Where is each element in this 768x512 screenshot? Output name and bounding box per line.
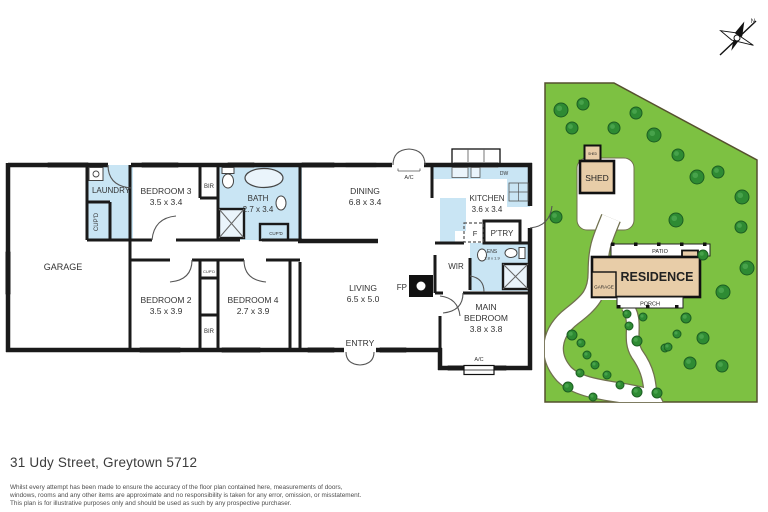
label-cupd-hall: CUP'D — [203, 269, 215, 274]
tree-highlight — [626, 323, 629, 326]
room-label-kitchen: 3.6 x 3.4 — [472, 205, 503, 214]
tree-highlight — [692, 172, 698, 178]
room-label-bedroom-3: 3.5 x 3.4 — [150, 197, 183, 207]
label-cupd-bath: CUP'D — [269, 231, 283, 236]
label-ens: ENS — [487, 249, 498, 255]
room-label-dining: DINING — [350, 186, 380, 196]
room-label-bedroom-2: 3.5 x 3.9 — [150, 306, 183, 316]
tree-highlight — [654, 390, 658, 394]
label-pantry: P'TRY — [491, 229, 514, 238]
tree-highlight — [579, 100, 584, 105]
tree-highlight — [699, 334, 704, 339]
tree-highlight — [671, 215, 677, 221]
tree-highlight — [568, 124, 573, 129]
label-dw: DW — [500, 171, 509, 177]
label-porch: PORCH — [640, 302, 660, 308]
tree-highlight — [578, 340, 581, 343]
room-label-main-bedroom: 3.8 x 3.8 — [470, 324, 503, 334]
tree-highlight — [742, 263, 748, 269]
tree-highlight — [718, 287, 724, 293]
room-label-bath: 2.7 x 3.4 — [243, 205, 274, 214]
room-label-bedroom-3: BEDROOM 3 — [140, 186, 191, 196]
tree-highlight — [577, 370, 580, 373]
tree-highlight — [686, 359, 691, 364]
disclaimer-line: This plan is for illustrative purposes o… — [10, 500, 361, 508]
label-ens-dims: 1.8 x 1.9 — [484, 256, 500, 261]
tree-highlight — [634, 338, 638, 342]
room-label-dining: 6.8 x 3.4 — [349, 197, 382, 207]
label-residence: RESIDENCE — [621, 270, 694, 284]
tree-highlight — [569, 332, 573, 336]
tree-highlight — [565, 384, 569, 388]
tree-highlight — [592, 362, 595, 365]
label-fp: FP — [397, 283, 407, 292]
room-label-kitchen: KITCHEN — [469, 194, 504, 203]
label-patio: PATIO — [652, 249, 668, 255]
label-cupd-laundry: CUP'D — [94, 212, 100, 231]
room-label-bedroom-2: BEDROOM 2 — [140, 295, 191, 305]
label-site-garage: GARAGE — [594, 285, 614, 290]
disclaimer-line: Whilst every attempt has been made to en… — [10, 484, 361, 492]
tree-highlight — [590, 394, 593, 397]
disclaimer-text: Whilst every attempt has been made to en… — [10, 484, 361, 509]
label-ac-dining: A/C — [404, 175, 413, 181]
room-label-bedroom-4: 2.7 x 3.9 — [237, 306, 270, 316]
room-label-bath: BATH — [248, 194, 269, 203]
tree-highlight — [700, 252, 704, 256]
tree-highlight — [737, 223, 742, 228]
disclaimer-line: windows, rooms and any other items are a… — [10, 492, 361, 500]
tree-highlight — [718, 362, 723, 367]
compass-north-label: N — [751, 18, 756, 25]
tree-highlight — [649, 130, 655, 136]
label-bir-hall: BIR — [204, 329, 215, 335]
label-fridge: F — [473, 229, 478, 238]
tree-highlight — [556, 105, 562, 111]
fireplace — [409, 275, 433, 297]
tree-highlight — [683, 315, 687, 319]
floorplan-drawing: SHEDSHEDRESIDENCEGARAGEPATIOPORCH N — [0, 0, 768, 512]
site-plan: SHEDSHEDRESIDENCEGARAGEPATIOPORCH — [545, 83, 757, 410]
tree-highlight — [584, 352, 587, 355]
room-label-laundry: LAUNDRY — [92, 186, 131, 195]
tree-highlight — [610, 124, 615, 129]
tree-highlight — [634, 389, 638, 393]
tree-highlight — [552, 213, 557, 218]
room-label-garage: GARAGE — [44, 262, 83, 272]
address-text: 31 Udy Street, Greytown 5712 — [10, 455, 197, 470]
label-ac-mainbed: A/C — [474, 357, 483, 363]
tree-highlight — [674, 151, 679, 156]
tree-highlight — [737, 192, 743, 198]
room-label-bedroom-4: BEDROOM 4 — [227, 295, 278, 305]
tree-highlight — [674, 331, 677, 334]
tree-highlight — [617, 382, 620, 385]
label-bir-bed3: BIR — [204, 184, 215, 190]
tree-highlight — [714, 168, 719, 173]
room-label-wir: WIR — [448, 262, 464, 271]
tree-highlight — [665, 344, 668, 347]
tree-highlight — [604, 372, 607, 375]
room-label-living: LIVING — [349, 283, 377, 293]
tree-highlight — [624, 311, 627, 314]
tree-highlight — [640, 314, 643, 317]
room-label-living: 6.5 x 5.0 — [347, 294, 380, 304]
floor-plan: GARAGELAUNDRYBEDROOM 33.5 x 3.4BATH2.7 x… — [6, 149, 553, 375]
tree-highlight — [632, 109, 637, 114]
compass-rose: N — [715, 14, 761, 58]
room-label-main-bedroom: BEDROOM — [464, 313, 508, 323]
label-shed: SHED — [585, 173, 609, 183]
room-label-main-bedroom: MAIN — [475, 302, 496, 312]
room-label-entry: ENTRY — [346, 338, 375, 348]
floorplan-page: SHEDSHEDRESIDENCEGARAGEPATIOPORCH N — [0, 0, 768, 512]
label-small-shed: SHED — [588, 152, 598, 156]
